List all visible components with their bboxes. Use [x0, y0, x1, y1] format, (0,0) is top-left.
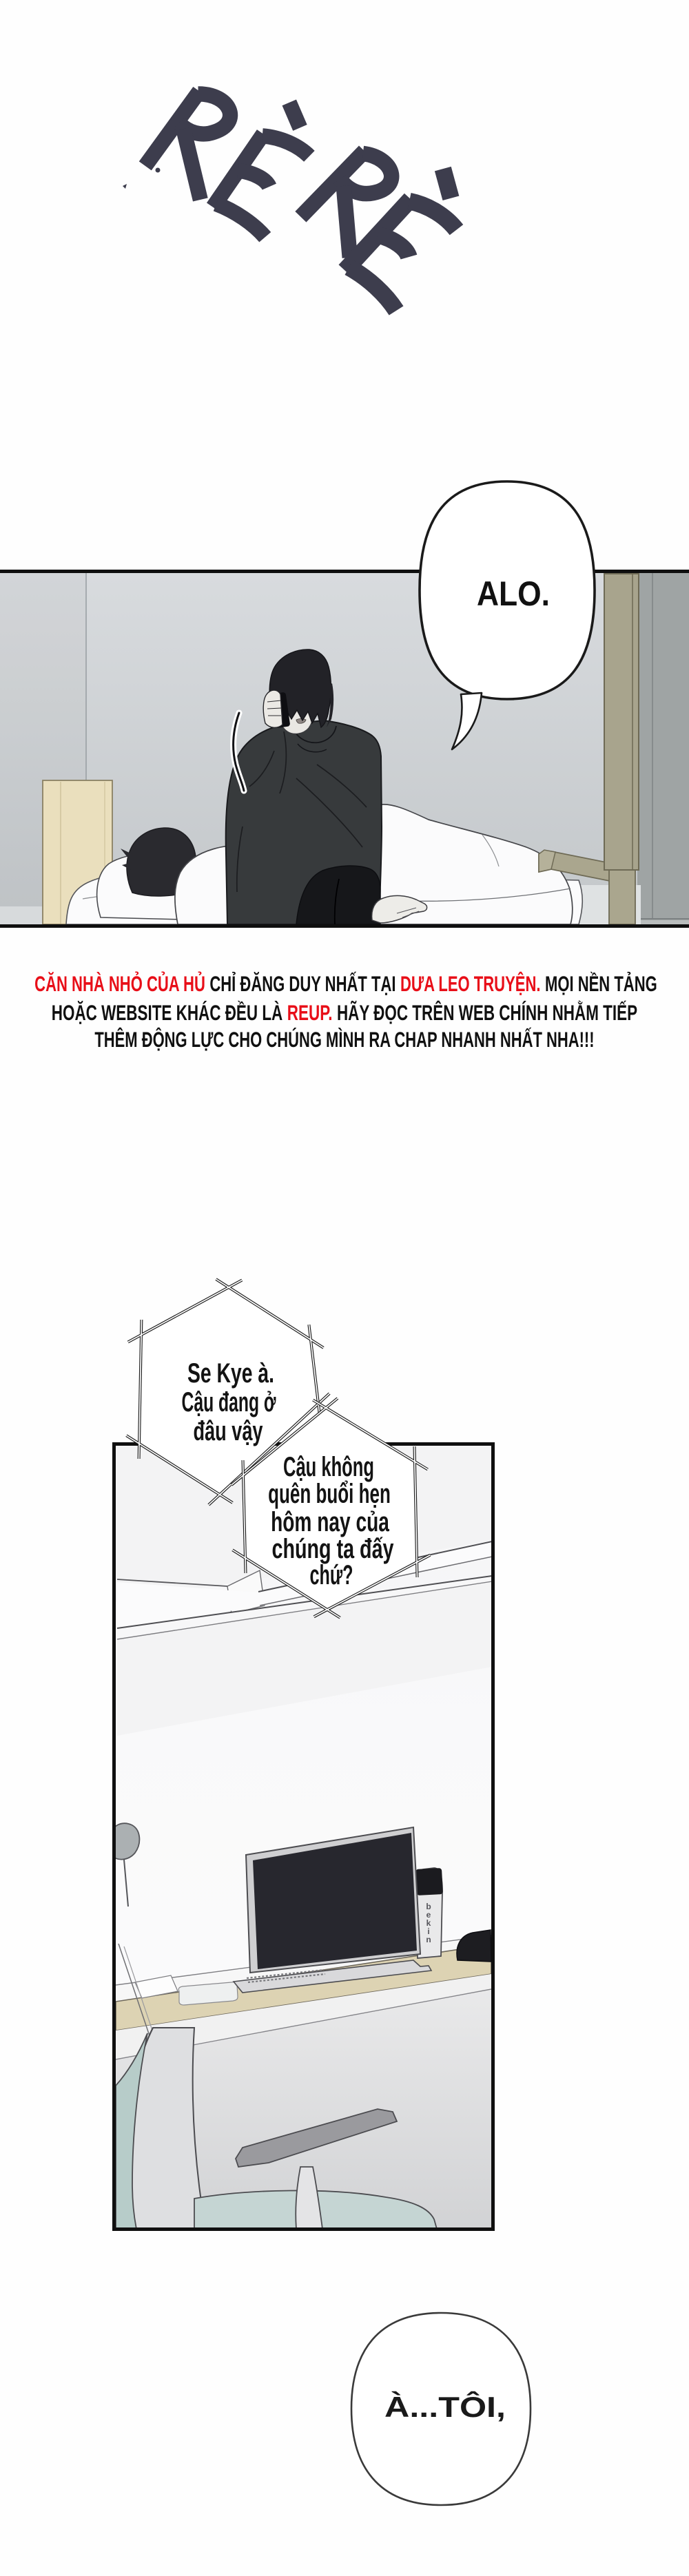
svg-text:À...TÔI,: À...TÔI, — [384, 2390, 506, 2423]
svg-text:Se Kye à.: Se Kye à. — [187, 1358, 274, 1389]
svg-text:chứ?: chứ? — [310, 1560, 353, 1590]
svg-text:MỌI NỀN TẢNG: MỌI NỀN TẢNG — [545, 970, 657, 996]
svg-text:REUP.: REUP. — [287, 1000, 333, 1025]
svg-text:bekin: bekin — [426, 1902, 431, 1944]
svg-text:THÊM ĐỘNG LỰC CHO CHÚNG MÌNH R: THÊM ĐỘNG LỰC CHO CHÚNG MÌNH RA CHAP NHA… — [94, 1026, 594, 1052]
svg-text:HÃY ĐỌC TRÊN WEB CHÍNH NHẰM TI: HÃY ĐỌC TRÊN WEB CHÍNH NHẰM TIẾP — [337, 1000, 637, 1025]
svg-text:đâu vậy: đâu vậy — [194, 1416, 263, 1446]
svg-text:DƯA LEO TRUYỆN.: DƯA LEO TRUYỆN. — [400, 971, 541, 996]
svg-text:Cậu đang ở: Cậu đang ở — [181, 1387, 276, 1418]
svg-text:ALO.: ALO. — [477, 574, 550, 613]
svg-text:HOẶC WEBSITE KHÁC ĐỀU LÀ: HOẶC WEBSITE KHÁC ĐỀU LÀ — [52, 1000, 283, 1025]
svg-text:CHỈ ĐĂNG DUY NHẤT TẠI: CHỈ ĐĂNG DUY NHẤT TẠI — [209, 970, 395, 996]
svg-text:CĂN NHÀ NHỎ CỦA HỦ: CĂN NHÀ NHỎ CỦA HỦ — [34, 970, 205, 996]
svg-text:quên buổi hẹn: quên buổi hẹn — [268, 1478, 391, 1509]
